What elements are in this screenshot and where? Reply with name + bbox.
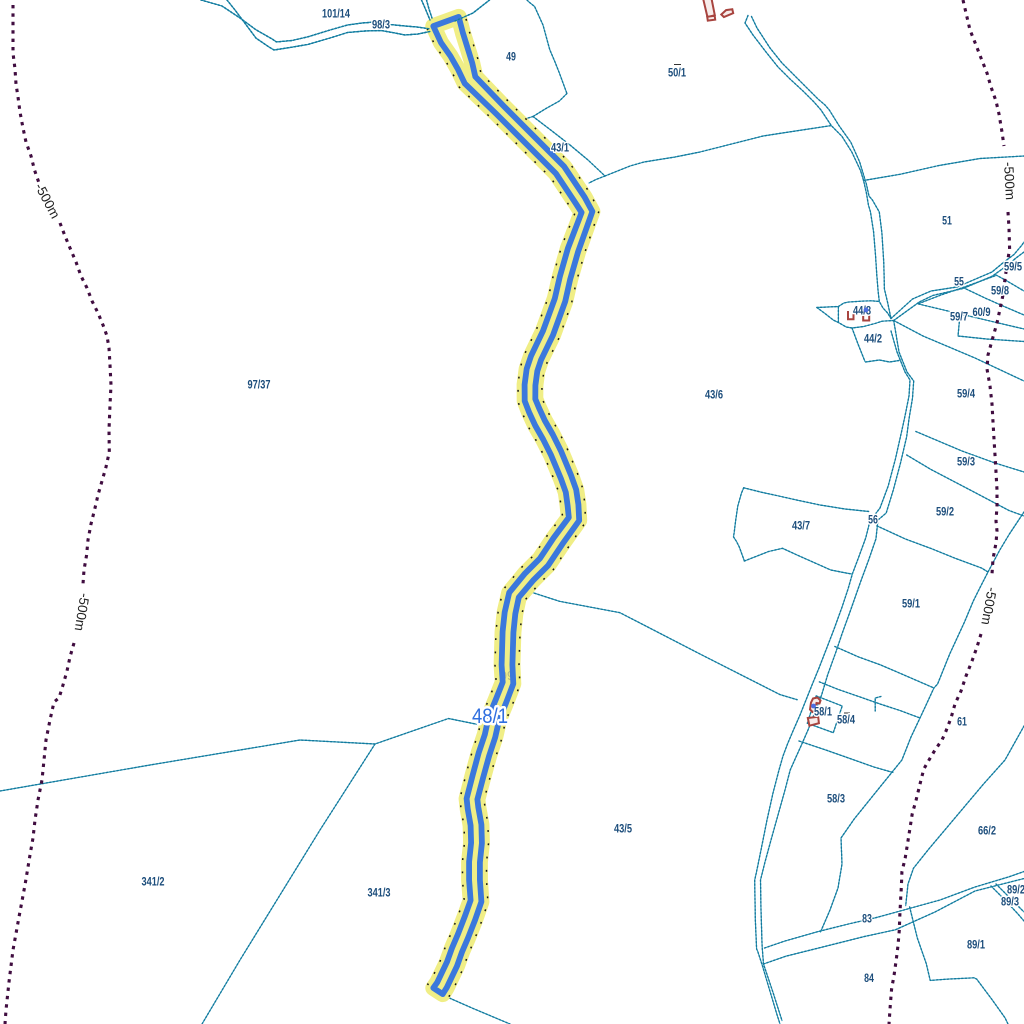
- svg-text:61: 61: [957, 714, 967, 728]
- svg-text:58/4: 58/4: [837, 712, 855, 726]
- svg-text:66/2: 66/2: [978, 823, 996, 837]
- svg-text:59/1: 59/1: [902, 596, 920, 610]
- svg-text:59/8: 59/8: [991, 283, 1009, 297]
- svg-text:59/3: 59/3: [957, 454, 975, 468]
- svg-text:43/5: 43/5: [614, 821, 632, 835]
- svg-text:101/14: 101/14: [322, 6, 350, 20]
- svg-text:59/5: 59/5: [1004, 259, 1022, 273]
- svg-text:58/3: 58/3: [827, 791, 845, 805]
- svg-text:44/8: 44/8: [853, 303, 871, 317]
- svg-text:56: 56: [868, 512, 878, 526]
- svg-text:49: 49: [506, 49, 516, 63]
- svg-text:83: 83: [862, 911, 872, 925]
- svg-text:97/37: 97/37: [248, 377, 271, 391]
- svg-text:89/3: 89/3: [1001, 894, 1019, 908]
- svg-text:43/6: 43/6: [705, 387, 723, 401]
- svg-text:341/3: 341/3: [368, 885, 391, 899]
- svg-text:89/1: 89/1: [967, 937, 985, 951]
- svg-text:84: 84: [864, 971, 874, 985]
- svg-text:43/7: 43/7: [792, 518, 810, 532]
- svg-text:48/1: 48/1: [472, 704, 508, 728]
- svg-text:51: 51: [942, 213, 952, 227]
- svg-text:-500m: -500m: [1001, 162, 1018, 201]
- svg-text:50/1: 50/1: [668, 65, 686, 79]
- svg-text:59/4: 59/4: [957, 386, 975, 400]
- svg-text:58/1: 58/1: [814, 704, 832, 718]
- svg-text:44/2: 44/2: [864, 331, 882, 345]
- svg-text:55: 55: [954, 274, 964, 288]
- svg-text:59/7: 59/7: [950, 309, 968, 323]
- svg-text:60/9: 60/9: [972, 305, 990, 319]
- svg-text:43/1: 43/1: [551, 140, 569, 154]
- svg-text:341/2: 341/2: [142, 874, 165, 888]
- svg-text:59/2: 59/2: [936, 504, 954, 518]
- svg-text:98/3: 98/3: [372, 17, 390, 31]
